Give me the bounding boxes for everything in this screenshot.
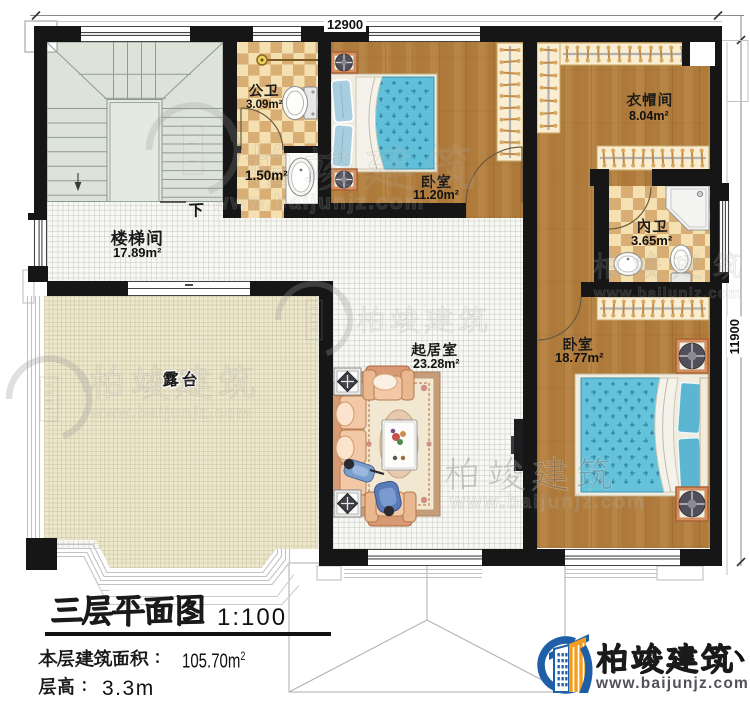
svg-text:www.baijunjz.com: www.baijunjz.com (211, 191, 425, 214)
svg-text:www.baijunjz.com: www.baijunjz.com (449, 492, 646, 513)
svg-text:www.baijunjz.com: www.baijunjz.com (593, 285, 743, 302)
svg-text:www.baijunjz.com: www.baijunjz.com (89, 405, 252, 422)
